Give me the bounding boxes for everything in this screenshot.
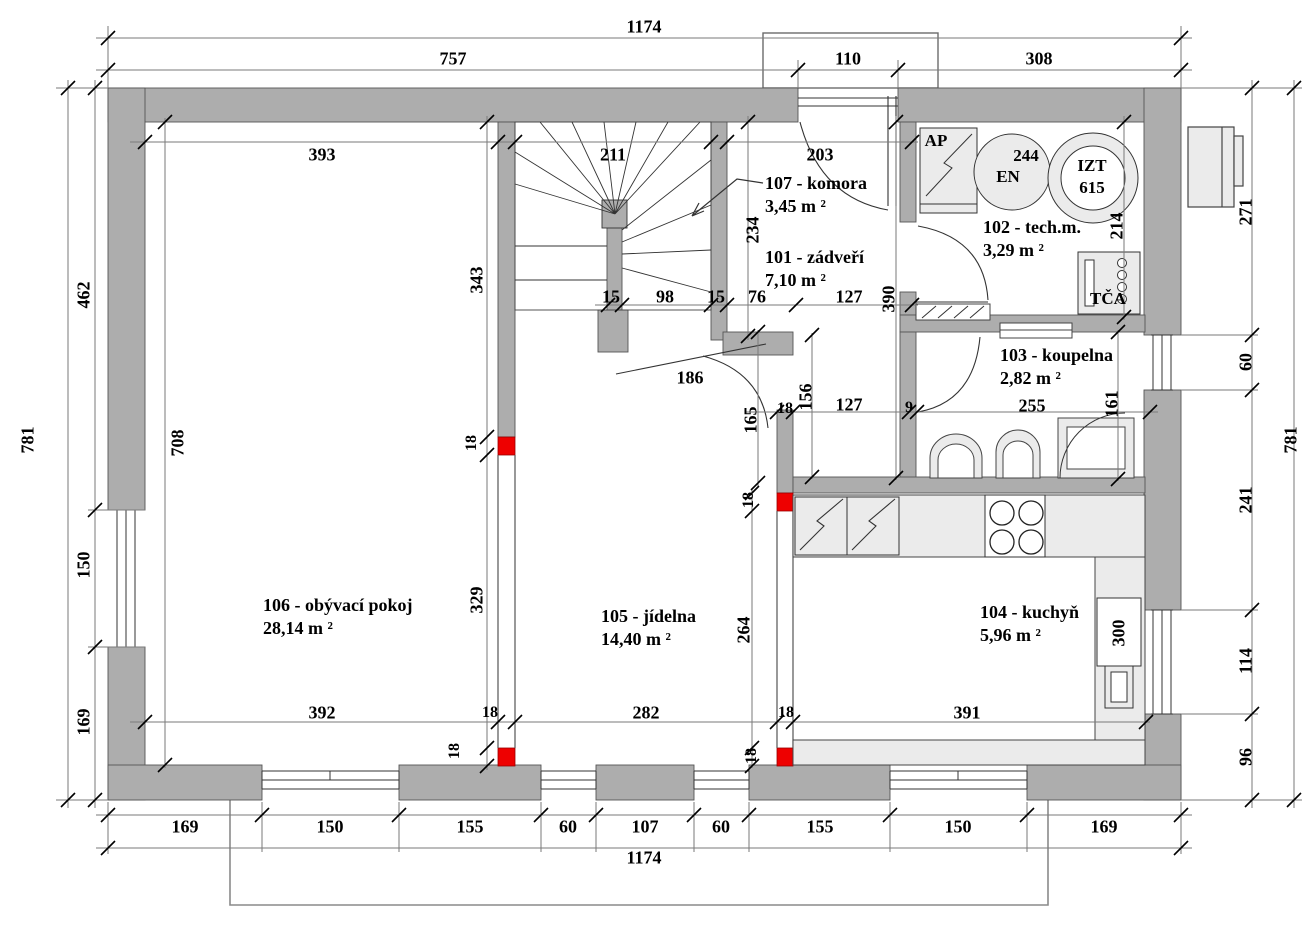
dim-hall-9: 9 [905,399,913,417]
equip-tca-label: TČA [1090,289,1126,309]
dim-top-total: 1174 [626,17,661,38]
room-label-zadveri: 101 - zádveří 7,10 m ² [765,246,864,291]
floor-plan: 1174 757 110 308 393 211 203 781 462 150… [0,0,1315,934]
dim-329: 329 [467,587,488,614]
dim-living-width: 393 [309,145,336,166]
dim-top-seg-308: 308 [1026,49,1053,70]
dim-bath-255: 255 [1019,396,1046,417]
room-jidelna-name: 105 - jídelna [601,605,696,628]
dim-right-241: 241 [1236,487,1257,514]
dim-dining-264: 264 [734,617,755,644]
room-label-jidelna: 105 - jídelna 14,40 m ² [601,605,696,650]
dim-bottom-total: 1174 [626,848,661,869]
dim-right-total: 781 [1281,427,1302,454]
dim-right-96: 96 [1236,748,1257,766]
equip-izt-label: IZT [1077,156,1106,176]
dim-entry-door: 203 [807,145,834,166]
dim-right-271: 271 [1236,199,1257,226]
dim-left-seg-169: 169 [74,709,95,736]
dim-wall18-f: 18 [463,435,481,451]
dim-hall-127: 127 [836,395,863,416]
dim-entry-390: 390 [879,286,900,313]
room-jidelna-area: 14,40 m ² [601,628,696,651]
room-label-tech: 102 - tech.m. 3,29 m ² [983,216,1081,261]
equip-en-value: 244 [1013,146,1039,166]
dim-stair-width: 211 [600,145,626,166]
dim-right-60: 60 [1236,353,1257,371]
dim-tech-214: 214 [1107,213,1128,240]
floor-plan-drawing [0,0,1315,934]
dim-bottom-391: 391 [954,703,981,724]
room-kuchyn-area: 5,96 m ² [980,624,1079,647]
dim-sink-300: 300 [1109,620,1130,647]
dim-bot-seg-5: 60 [712,817,730,838]
dim-bot-seg-4: 107 [632,817,659,838]
dim-bot-seg-3: 60 [559,817,577,838]
room-label-koupelna: 103 - koupelna 2,82 m ² [1000,344,1113,389]
komora-leader-arrow [692,179,763,216]
room-komora-area: 3,45 m ² [765,195,867,218]
dim-wall18-c: 18 [777,400,793,418]
dim-right-114: 114 [1236,648,1257,674]
dim-stair-15b: 15 [707,287,725,308]
dim-bot-seg-0: 169 [172,817,199,838]
room-obyvaci-area: 28,14 m ² [263,617,413,640]
dim-wall18-d: 18 [446,743,464,759]
room-tech-name: 102 - tech.m. [983,216,1081,239]
room-kuchyn-name: 104 - kuchyň [980,601,1079,624]
room-tech-area: 3,29 m ² [983,239,1081,262]
dim-stair-98: 98 [656,287,674,308]
dim-entry-76: 76 [748,287,766,308]
room-label-kuchyn: 104 - kuchyň 5,96 m ² [980,601,1079,646]
equip-ap-label: AP [925,131,948,151]
room-koupelna-name: 103 - koupelna [1000,344,1113,367]
equip-izt-value: 615 [1079,178,1105,198]
dim-bot-seg-2: 155 [457,817,484,838]
dim-wall18-a: 18 [482,704,498,722]
dim-wall18-g: 18 [740,492,758,508]
dim-top-seg-110: 110 [835,49,861,70]
dim-343: 343 [467,267,488,294]
dim-bot-seg-7: 150 [945,817,972,838]
heat-pump-unit [1188,127,1243,207]
room-koupelna-area: 2,82 m ² [1000,367,1113,390]
dim-hall-165: 165 [741,407,762,434]
dim-bottom-282: 282 [633,703,660,724]
room-zadveri-name: 101 - zádveří [765,246,864,269]
dim-wall18-b: 18 [778,704,794,722]
dim-stair-15a: 15 [602,287,620,308]
room-zadveri-area: 7,10 m ² [765,269,864,292]
dim-left-total: 781 [18,427,39,454]
dim-bath-161: 161 [1102,391,1123,418]
dim-bot-seg-6: 155 [807,817,834,838]
dim-wall18-e: 18 [743,748,761,764]
kitchen-fixtures [793,495,1145,765]
room-komora-name: 107 - komora [765,172,867,195]
dim-top-seg-757: 757 [440,49,467,70]
dim-bot-seg-8: 169 [1091,817,1118,838]
dim-hall-156: 156 [796,384,817,411]
equip-en-label: EN [996,167,1020,187]
dim-living-depth: 708 [168,430,189,457]
dim-left-seg-150: 150 [74,552,95,579]
dim-left-seg-462: 462 [74,282,95,309]
room-label-komora: 107 - komora 3,45 m ² [765,172,867,217]
dim-entry-234: 234 [743,217,764,244]
dim-bottom-392: 392 [309,703,336,724]
dim-entry-186: 186 [677,368,704,389]
room-label-obyvaci: 106 - obývací pokoj 28,14 m ² [263,594,413,639]
room-obyvaci-name: 106 - obývací pokoj [263,594,413,617]
dim-bot-seg-1: 150 [317,817,344,838]
